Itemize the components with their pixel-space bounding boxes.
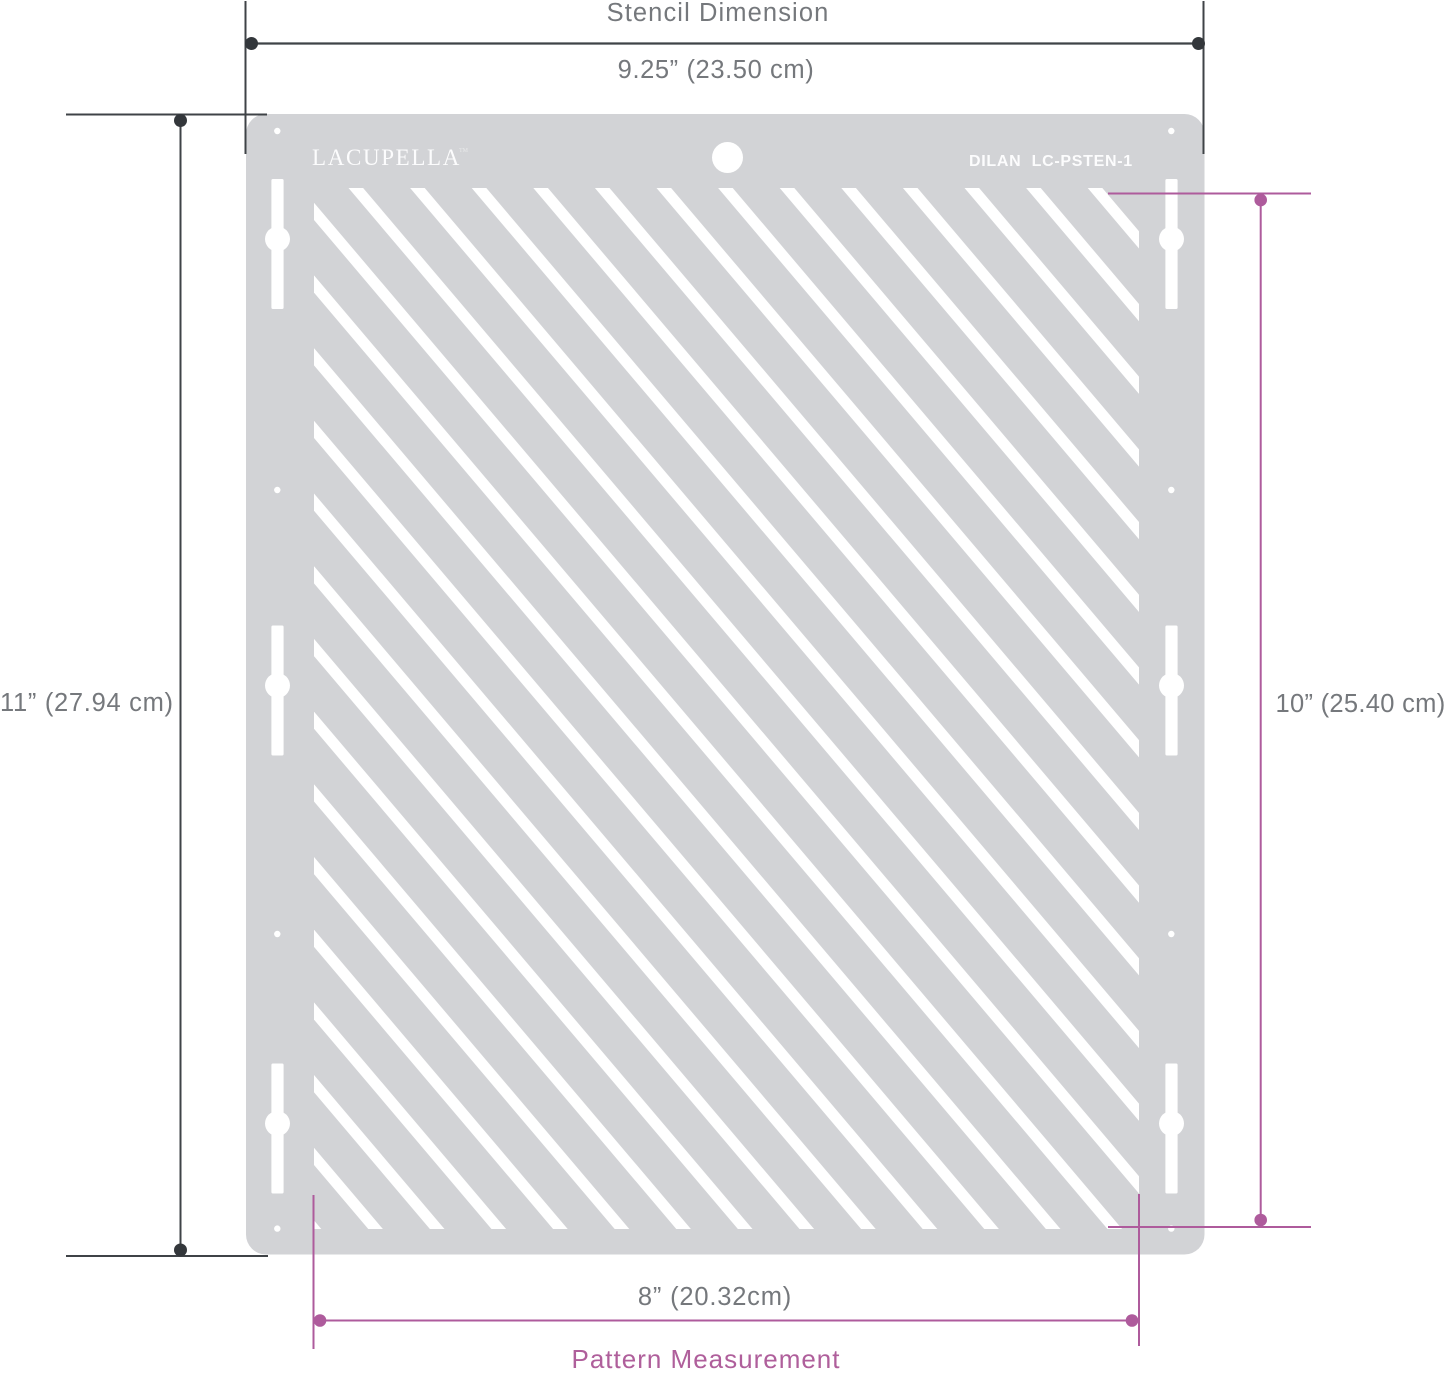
svg-text:10” (25.40 cm): 10” (25.40 cm) — [1276, 690, 1445, 718]
svg-text:Pattern Measurement: Pattern Measurement — [571, 1344, 840, 1373]
svg-text:8” (20.32cm): 8” (20.32cm) — [638, 1283, 792, 1311]
svg-text:9.25” (23.50 cm): 9.25” (23.50 cm) — [618, 56, 815, 84]
svg-text:Stencil Dimension: Stencil Dimension — [607, 0, 830, 27]
svg-text:DILAN LC-PSTEN-1: DILAN LC-PSTEN-1 — [969, 153, 1133, 170]
svg-text:11” (27.94 cm): 11” (27.94 cm) — [0, 689, 174, 717]
svg-text:LACUPELLA: LACUPELLA — [312, 145, 461, 170]
svg-text:TM: TM — [459, 148, 469, 154]
